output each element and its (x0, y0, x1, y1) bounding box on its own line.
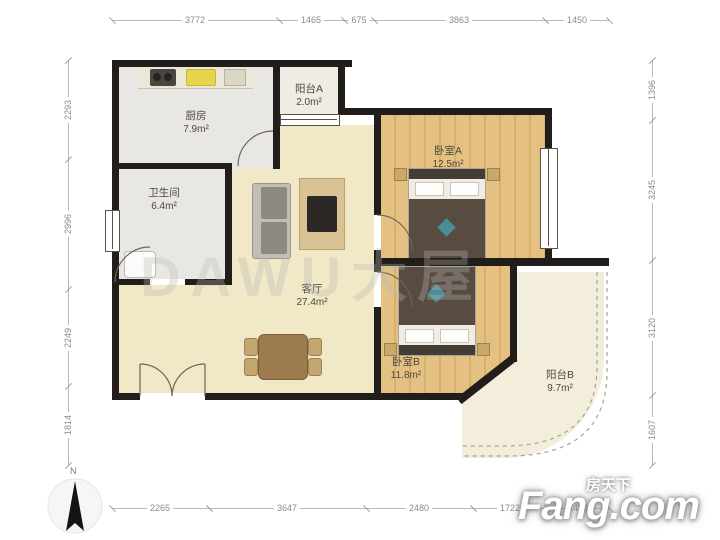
nightstand (384, 343, 397, 356)
room-label-living: 客厅 27.4m² (296, 282, 327, 310)
chair (244, 358, 258, 376)
room-label-bedroom-b: 卧室B 11.8m² (391, 355, 421, 383)
stove-icon (150, 69, 176, 86)
dim-top-3: 675 (348, 15, 369, 25)
dim-bottom-1: 2265 (147, 503, 173, 513)
dim-left-3: 2249 (63, 325, 73, 351)
bed-b (398, 266, 476, 356)
nightstand (487, 168, 500, 181)
dim-top-2: 1465 (298, 15, 324, 25)
fang-logo[interactable]: 房天下 Fang.com (516, 472, 720, 536)
wall (374, 307, 381, 400)
room-label-bathroom: 卫生间 6.4m² (148, 186, 180, 214)
wall (112, 393, 140, 400)
wall (338, 108, 552, 115)
compass-circle (48, 479, 102, 533)
wall (374, 250, 381, 272)
dim-right-3: 3120 (647, 315, 657, 341)
wall (374, 108, 381, 215)
wall (338, 60, 345, 115)
dining-table (258, 334, 308, 380)
wall (225, 163, 232, 285)
bedroom-a-window (540, 148, 558, 249)
nightstand (477, 343, 490, 356)
fang-logo-en: Fang.com (518, 484, 699, 529)
dim-top-1: 3772 (182, 15, 208, 25)
dim-left-2: 2996 (63, 211, 73, 237)
living-room-floor-left (119, 285, 232, 393)
wall (273, 60, 280, 169)
kitchen-appliance-icon (224, 69, 246, 86)
wall (185, 279, 232, 285)
nightstand (394, 168, 407, 181)
dim-right-2: 3245 (647, 177, 657, 203)
wall (510, 262, 517, 362)
wall (374, 393, 465, 400)
room-label-balcony-a: 阳台A 2.0m² (295, 82, 323, 110)
dim-top-5: 1450 (564, 15, 590, 25)
dim-bottom-2: 3647 (274, 503, 300, 513)
room-label-bedroom-a: 卧室A 12.5m² (432, 144, 463, 172)
room-label-kitchen: 厨房 7.9m² (183, 109, 209, 137)
floor-plan: 3772 1465 675 3863 1450 2265 3647 2480 1… (0, 0, 720, 540)
wall (205, 393, 381, 400)
dim-left-1: 2293 (63, 97, 73, 123)
dim-top-4: 3863 (446, 15, 472, 25)
kitchen-sink-icon (186, 69, 216, 86)
north-arrow-icon (66, 481, 84, 531)
chair (308, 338, 322, 356)
tick (649, 462, 656, 469)
bed-a (408, 168, 486, 260)
tv-console (299, 178, 345, 250)
wall (374, 258, 609, 266)
chair (244, 338, 258, 356)
dim-left-4: 1814 (63, 412, 73, 438)
wall (112, 279, 150, 285)
dim-right-4: 1607 (647, 417, 657, 443)
balcony-a-window (280, 114, 340, 126)
dim-right-1: 1396 (647, 77, 657, 103)
compass-north-label: N (70, 466, 77, 476)
sofa (252, 183, 291, 259)
wall (112, 163, 232, 169)
dim-bottom-3: 2480 (406, 503, 432, 513)
bathroom-window (105, 210, 120, 252)
wall (112, 60, 352, 67)
bathroom-fixture-icon (124, 251, 156, 278)
room-label-balcony-b: 阳台B 9.7m² (546, 368, 574, 396)
chair (308, 358, 322, 376)
